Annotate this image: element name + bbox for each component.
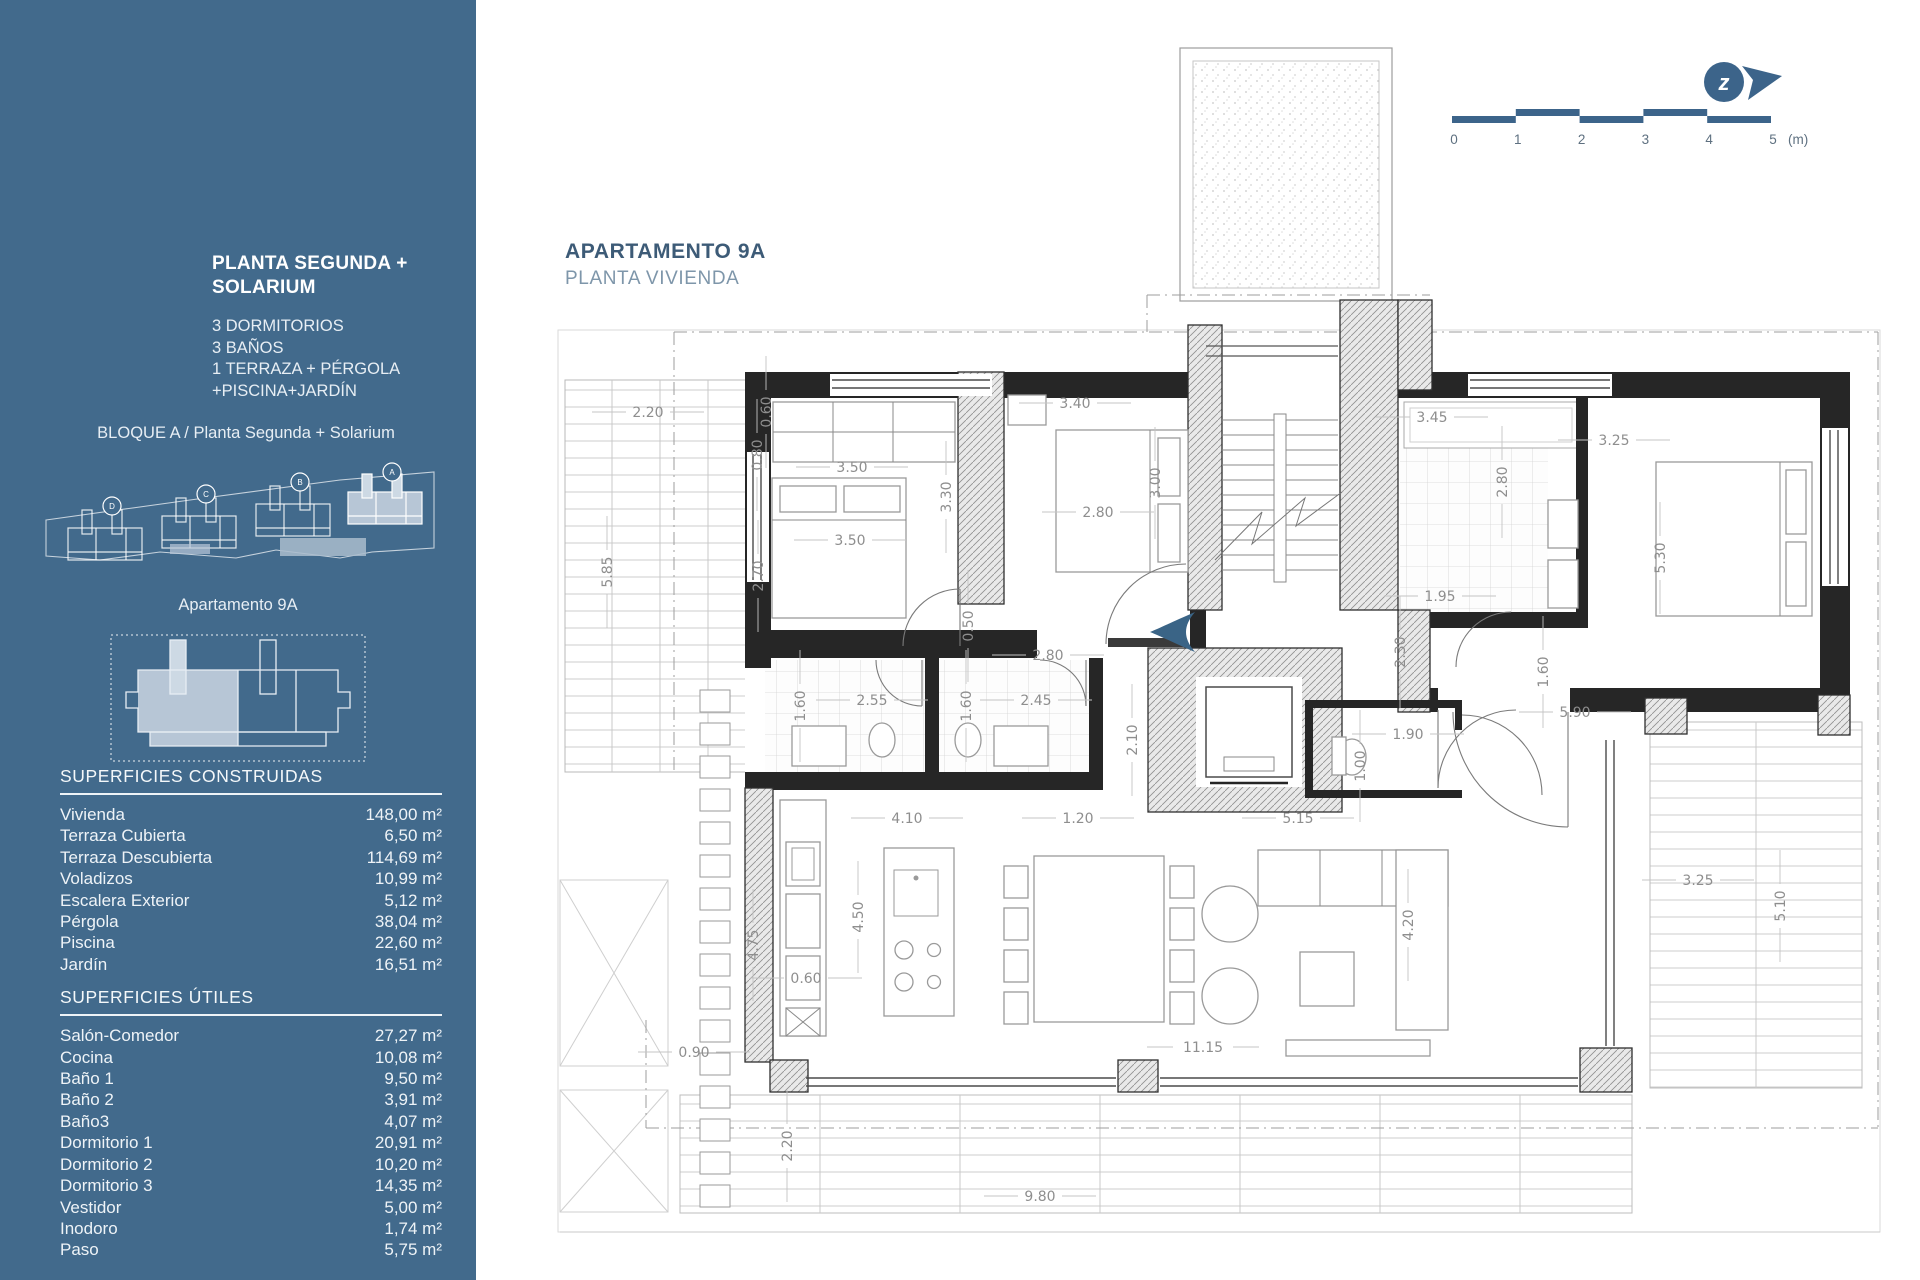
dimension-label: 2.55 [856,693,887,709]
dimension-label: 0.80 [750,439,766,470]
surface-value: 38,04 m² [375,911,442,932]
surface-row: Baño34,07 m² [60,1111,442,1132]
surface-row: Pérgola38,04 m² [60,911,442,932]
dimension-label: 4.10 [891,811,922,827]
surface-tables: SUPERFICIES CONSTRUIDAS Vivienda148,00 m… [60,766,442,1261]
surface-label: Vivienda [60,804,125,825]
site-plan-diagram: DCBA [40,452,440,580]
bath-3-tiles [1400,448,1548,614]
surface-label: Pérgola [60,911,119,932]
surface-label: Voladizos [60,868,133,889]
bedroom-3-furniture [1656,462,1812,616]
building-letter: B [297,478,302,487]
dimension-label: 1.60 [1536,656,1552,687]
surface-value: 22,60 m² [375,932,442,953]
surface-value: 5,12 m² [384,890,442,911]
surface-label: Baño 1 [60,1068,114,1089]
surfaces-built-heading: SUPERFICIES CONSTRUIDAS [60,766,442,795]
surface-row: Terraza Cubierta6,50 m² [60,825,442,846]
surface-row: Paso5,75 m² [60,1239,442,1260]
feature-list: 3 DORMITORIOS3 BAÑOS1 TERRAZA + PÉRGOLA+… [212,316,400,402]
terrace-deck-right [1650,722,1862,1088]
surface-row: Dormitorio 314,35 m² [60,1175,442,1196]
surface-label: Dormitorio 2 [60,1154,153,1175]
floor-title: PLANTA SEGUNDA + SOLARIUM [212,252,432,300]
surface-label: Inodoro [60,1218,118,1239]
surface-row: Cocina10,08 m² [60,1047,442,1068]
building-b [256,486,330,536]
terrace-deck-left [565,380,760,772]
surface-label: Vestidor [60,1197,121,1218]
pool-strip-small [170,544,210,554]
surface-value: 6,50 m² [384,825,442,846]
dimension-label: 9.80 [1024,1189,1055,1205]
surface-row: Dormitorio 120,91 m² [60,1132,442,1153]
surfaces-useful-table: Salón-Comedor27,27 m²Cocina10,08 m²Baño … [60,1025,442,1260]
dimension-label: 1.90 [1392,727,1423,743]
dimension-label: 1.60 [793,690,809,721]
building-letter: D [109,502,115,511]
dimension-label: 2.80 [1082,505,1113,521]
surface-value: 10,20 m² [375,1154,442,1175]
surface-value: 27,27 m² [375,1025,442,1046]
unit-9a-highlight [138,670,238,746]
surface-row: Baño 19,50 m² [60,1068,442,1089]
surface-value: 1,74 m² [384,1218,442,1239]
dimension-label: 3.25 [1682,873,1713,889]
surface-label: Dormitorio 1 [60,1132,153,1153]
surface-label: Baño 2 [60,1089,114,1110]
building-a-highlighted [348,474,422,524]
dimension-label: 3.50 [834,533,865,549]
surface-label: Piscina [60,932,115,953]
apartment-key-diagram [108,632,368,764]
building-letter: C [203,490,209,499]
surface-label: Terraza Cubierta [60,825,186,846]
dimension-label: 2.80 [1495,466,1511,497]
dimension-label: 4.75 [746,929,762,960]
surface-row: Vestidor5,00 m² [60,1197,442,1218]
surface-label: Terraza Descubierta [60,847,212,868]
surface-row: Vivienda148,00 m² [60,804,442,825]
surface-label: Jardín [60,954,107,975]
dimension-label: 11.15 [1183,1040,1223,1056]
building-d [68,510,142,560]
feature-item: 3 BAÑOS [212,338,400,360]
dimension-label: 5.85 [600,556,616,587]
dimension-label: 4.20 [1401,909,1417,940]
surface-row: Piscina22,60 m² [60,932,442,953]
surface-label: Salón-Comedor [60,1025,179,1046]
apartment-label: Apartamento 9A [60,596,416,615]
surface-row: Jardín16,51 m² [60,954,442,975]
feature-item: +PISCINA+JARDÍN [212,381,400,403]
surface-value: 5,75 m² [384,1239,442,1260]
surface-value: 3,91 m² [384,1089,442,1110]
dimension-label: 3.30 [939,481,955,512]
feature-item: 3 DORMITORIOS [212,316,400,338]
feature-item: 1 TERRAZA + PÉRGOLA [212,359,400,381]
surface-row: Terraza Descubierta114,69 m² [60,847,442,868]
dimension-label: 5.15 [1282,811,1313,827]
surface-value: 148,00 m² [365,804,442,825]
surface-row: Voladizos10,99 m² [60,868,442,889]
surface-row: Inodoro1,74 m² [60,1218,442,1239]
block-label: BLOQUE A / Planta Segunda + Solarium [60,424,432,443]
surface-value: 10,08 m² [375,1047,442,1068]
surface-label: Cocina [60,1047,113,1068]
dimension-label: 0.90 [678,1045,709,1061]
dimension-label: 1.00 [1353,750,1369,781]
dimension-label: 2.20 [632,405,663,421]
surface-value: 10,99 m² [375,868,442,889]
surface-value: 9,50 m² [384,1068,442,1089]
elevator [1196,677,1302,787]
dimension-label: 1.60 [959,690,975,721]
surface-row: Escalera Exterior5,12 m² [60,890,442,911]
dimension-label: 1.95 [1424,589,1455,605]
dimension-label: 0.60 [759,396,775,427]
dimension-label: 3.00 [1148,467,1164,498]
dimension-label: 2.10 [1125,724,1141,755]
dimension-label: 3.40 [1059,396,1090,412]
surfaces-useful-heading: SUPERFICIES ÚTILES [60,987,442,1016]
surface-row: Baño 23,91 m² [60,1089,442,1110]
terrace-deck-bottom [680,1095,1632,1213]
surface-label: Baño3 [60,1111,109,1132]
surface-label: Paso [60,1239,99,1260]
surface-value: 16,51 m² [375,954,442,975]
dimension-label: 2.80 [1032,648,1063,664]
pool [1180,48,1392,301]
surface-value: 5,00 m² [384,1197,442,1218]
dimension-label: 2.70 [751,560,767,591]
building-c [162,498,236,548]
pergola-panels [560,880,668,1212]
surface-value: 4,07 m² [384,1111,442,1132]
dimension-label: 3.25 [1598,433,1629,449]
surface-row: Dormitorio 210,20 m² [60,1154,442,1175]
dimension-label: 5.30 [1653,542,1669,573]
building-letter: A [389,468,395,477]
dimension-label: 5.10 [1773,890,1789,921]
surface-value: 114,69 m² [367,847,442,868]
exterior-stair [700,690,730,1207]
dimension-label: 2.45 [1020,693,1051,709]
surface-value: 20,91 m² [375,1132,442,1153]
dimension-label: 5.90 [1559,705,1590,721]
dimension-label: 2.20 [780,1130,796,1161]
dimension-label: 0.50 [961,610,977,641]
dimension-label: 4.50 [851,901,867,932]
floor-plan: 2.205.850.600.803.503.502.700.503.303.40… [470,0,1920,1280]
dimension-label: 1.20 [1062,811,1093,827]
surface-label: Dormitorio 3 [60,1175,153,1196]
surface-value: 14,35 m² [375,1175,442,1196]
dimension-label: 3.45 [1416,410,1447,426]
dimension-label: 3.50 [836,460,867,476]
pool-strip [280,538,366,556]
dimension-label: 0.60 [790,971,821,987]
surface-label: Escalera Exterior [60,890,189,911]
info-sidebar: PLANTA SEGUNDA + SOLARIUM 3 DORMITORIOS3… [0,0,476,1280]
surfaces-built-table: Vivienda148,00 m²Terraza Cubierta6,50 m²… [60,804,442,975]
surface-row: Salón-Comedor27,27 m² [60,1025,442,1046]
dimension-label: 2.30 [1393,636,1409,667]
